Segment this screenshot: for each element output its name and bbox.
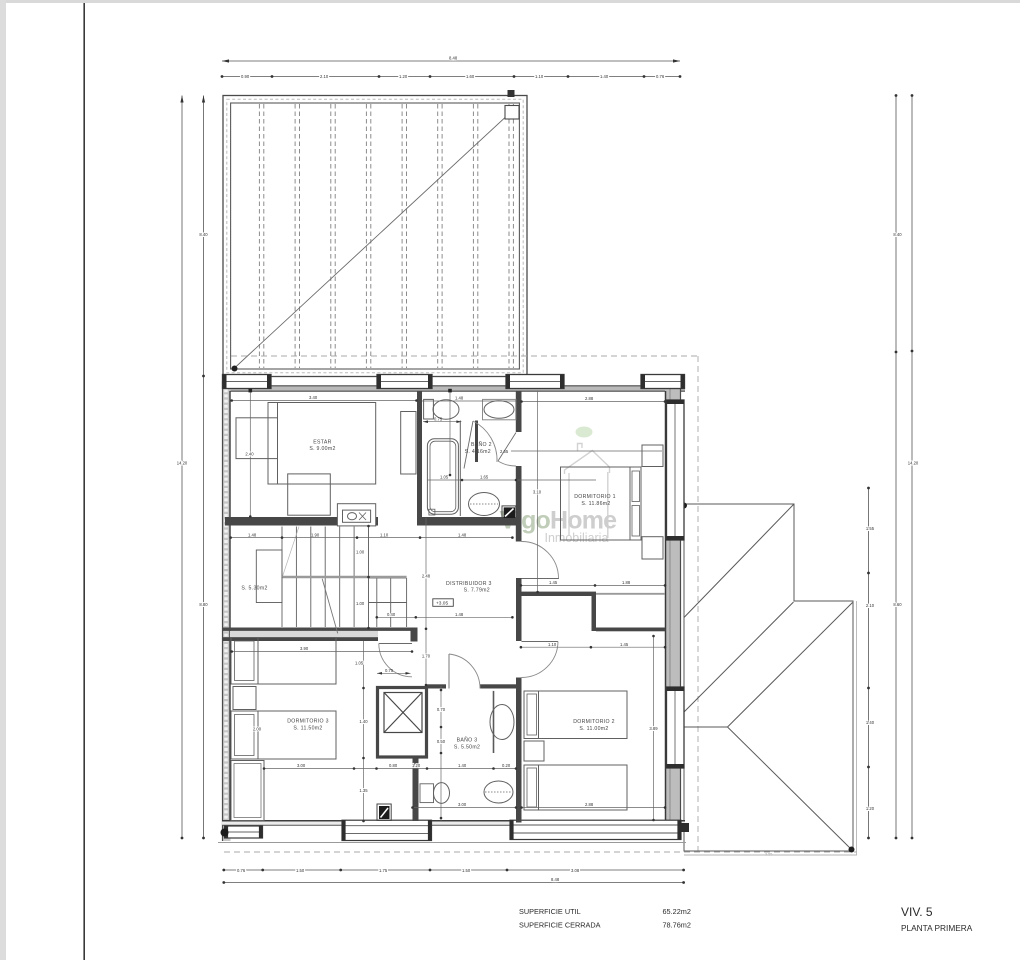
svg-text:1.10: 1.10	[380, 532, 389, 537]
svg-text:1.88: 1.88	[622, 580, 631, 585]
svg-text:1.75: 1.75	[379, 868, 388, 873]
svg-text:0.75: 0.75	[385, 668, 394, 673]
svg-text:1.50: 1.50	[296, 868, 305, 873]
svg-text:3.89: 3.89	[649, 726, 658, 731]
svg-text:1.40: 1.40	[600, 74, 609, 79]
svg-text:3.10: 3.10	[533, 490, 542, 495]
svg-text:0.75: 0.75	[434, 416, 443, 421]
svg-text:8.40: 8.40	[199, 232, 208, 237]
svg-text:BAÑO 2: BAÑO 2	[471, 441, 492, 448]
svg-text:8.60: 8.60	[893, 602, 902, 607]
svg-text:0.80: 0.80	[389, 763, 398, 768]
svg-text:1.48: 1.48	[455, 612, 464, 617]
svg-text:2.88: 2.88	[585, 396, 594, 401]
svg-text:2.88: 2.88	[585, 802, 594, 807]
svg-text:2.40: 2.40	[245, 452, 254, 457]
svg-text:3.55: 3.55	[765, 853, 772, 857]
svg-text:1.20: 1.20	[412, 763, 421, 768]
svg-text:BAÑO 3: BAÑO 3	[457, 737, 478, 744]
svg-text:1.10: 1.10	[548, 642, 557, 647]
svg-text:3.00: 3.00	[297, 763, 306, 768]
svg-text:1.48: 1.48	[248, 532, 257, 537]
svg-text:ESTAR: ESTAR	[313, 440, 331, 446]
svg-text:3.90: 3.90	[300, 646, 309, 651]
svg-text:S. 5.30m2: S. 5.30m2	[241, 586, 267, 592]
svg-text:1.20: 1.20	[866, 806, 875, 811]
svg-text:PLANTA PRIMERA: PLANTA PRIMERA	[901, 923, 973, 933]
svg-text:S. 9.00m2: S. 9.00m2	[309, 446, 335, 452]
svg-text:0.20: 0.20	[502, 763, 511, 768]
svg-text:1.45: 1.45	[620, 642, 629, 647]
svg-text:DISTRIBUIDOR 3: DISTRIBUIDOR 3	[446, 581, 492, 587]
svg-text:1.10: 1.10	[535, 74, 544, 79]
svg-text:0.70: 0.70	[437, 707, 446, 712]
svg-text:0.76: 0.76	[237, 868, 246, 873]
svg-text:1.40: 1.40	[866, 720, 875, 725]
svg-text:1.40: 1.40	[458, 763, 467, 768]
svg-text:S. 4.16m2: S. 4.16m2	[465, 449, 491, 455]
svg-text:S. 11.86m2: S. 11.86m2	[581, 501, 610, 507]
svg-text:1.48: 1.48	[455, 396, 464, 401]
svg-text:14.20: 14.20	[177, 461, 188, 466]
svg-text:0.90: 0.90	[241, 74, 250, 79]
svg-text:S. 5.50m2: S. 5.50m2	[454, 744, 480, 750]
svg-text:+3.05: +3.05	[436, 601, 448, 607]
svg-text:S. 7.79m2: S. 7.79m2	[464, 588, 490, 594]
svg-text:1.65: 1.65	[480, 475, 489, 480]
svg-text:1.00: 1.00	[356, 601, 365, 606]
svg-text:14.20: 14.20	[908, 461, 919, 466]
svg-text:3.08: 3.08	[571, 868, 580, 873]
svg-text:78.76m2: 78.76m2	[663, 921, 691, 930]
svg-text:1.90: 1.90	[311, 532, 320, 537]
svg-text:1.45: 1.45	[549, 580, 558, 585]
svg-text:1.35: 1.35	[359, 788, 368, 793]
svg-text:0.50: 0.50	[437, 739, 446, 744]
svg-text:1.55: 1.55	[866, 526, 875, 531]
svg-text:1.48: 1.48	[458, 532, 467, 537]
svg-text:1.20: 1.20	[399, 74, 408, 79]
svg-text:2.48: 2.48	[422, 574, 431, 579]
svg-text:SUPERFICIE CERRADA: SUPERFICIE CERRADA	[519, 921, 601, 930]
svg-text:8.48: 8.48	[449, 55, 458, 60]
svg-text:S. 11.50m2: S. 11.50m2	[293, 725, 322, 731]
svg-text:3.40: 3.40	[309, 395, 318, 400]
svg-text:65.22m2: 65.22m2	[663, 907, 691, 916]
svg-text:2.00: 2.00	[253, 727, 262, 732]
svg-text:1.60: 1.60	[466, 74, 475, 79]
svg-text:Inmobiliaria: Inmobiliaria	[545, 531, 609, 545]
svg-text:8.80: 8.80	[199, 602, 208, 607]
svg-text:1.50: 1.50	[462, 868, 471, 873]
svg-text:1.40: 1.40	[359, 719, 368, 724]
svg-text:DORMITORIO 3: DORMITORIO 3	[287, 719, 329, 725]
svg-text:8.48: 8.48	[551, 877, 560, 882]
svg-text:2.65: 2.65	[500, 449, 509, 454]
svg-text:8.40: 8.40	[893, 232, 902, 237]
svg-text:1.70: 1.70	[422, 654, 431, 659]
svg-text:S. 11.00m2: S. 11.00m2	[579, 726, 608, 732]
svg-text:1.00: 1.00	[356, 550, 365, 555]
svg-text:VIV. 5: VIV. 5	[901, 905, 933, 919]
svg-text:DORMITORIO 1: DORMITORIO 1	[574, 494, 616, 500]
svg-text:DORMITORIO 2: DORMITORIO 2	[573, 719, 615, 725]
svg-text:SUPERFICIE UTIL: SUPERFICIE UTIL	[519, 907, 581, 916]
svg-text:2.10: 2.10	[320, 74, 329, 79]
svg-text:1.05: 1.05	[355, 661, 364, 666]
svg-text:2.10: 2.10	[866, 603, 875, 608]
svg-text:0.76: 0.76	[656, 74, 665, 79]
svg-text:1.05: 1.05	[440, 475, 449, 480]
svg-text:0.40: 0.40	[387, 612, 396, 617]
svg-text:3.00: 3.00	[458, 802, 467, 807]
